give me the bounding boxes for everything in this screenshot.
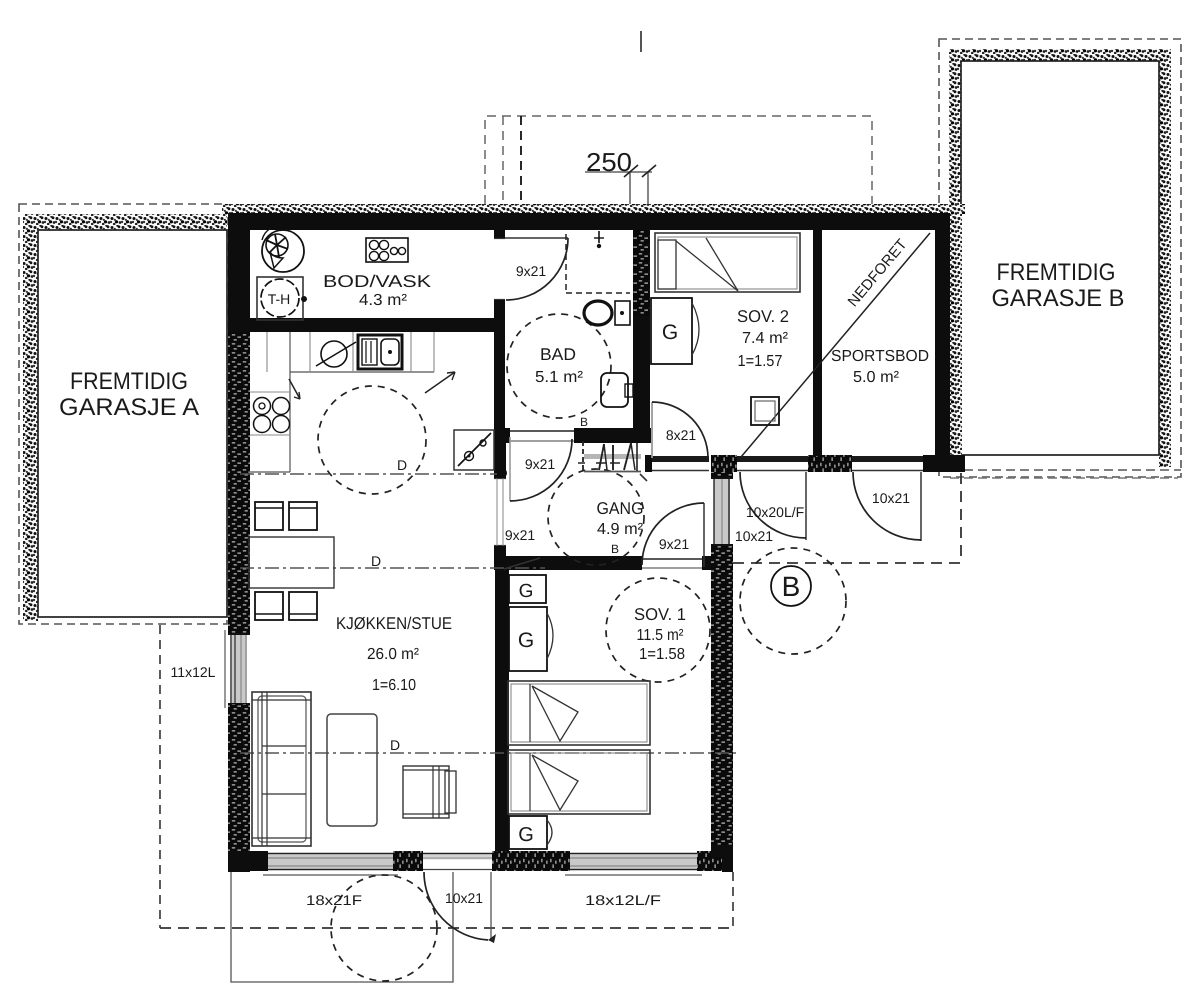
svg-text:5.0 m²: 5.0 m² — [853, 369, 900, 386]
svg-text:G: G — [518, 629, 534, 652]
svg-text:GARASJE B: GARASJE B — [992, 285, 1125, 312]
svg-text:7.4 m²: 7.4 m² — [742, 330, 789, 347]
svg-text:SOV. 2: SOV. 2 — [737, 307, 789, 326]
svg-text:11.5 m²: 11.5 m² — [637, 627, 685, 644]
svg-text:GANG: GANG — [597, 499, 644, 518]
svg-text:KJØKKEN/STUE: KJØKKEN/STUE — [336, 614, 452, 633]
svg-text:1=1.57: 1=1.57 — [738, 353, 783, 370]
svg-text:G: G — [662, 321, 678, 344]
svg-text:D: D — [390, 737, 400, 753]
svg-text:8x21: 8x21 — [666, 427, 697, 443]
svg-text:10x21: 10x21 — [872, 490, 910, 506]
svg-text:10x21: 10x21 — [735, 528, 773, 544]
svg-text:26.0 m²: 26.0 m² — [367, 646, 420, 663]
svg-text:18x21F: 18x21F — [306, 892, 362, 908]
svg-text:11x12L: 11x12L — [171, 664, 216, 680]
svg-text:1=1.58: 1=1.58 — [639, 646, 685, 663]
svg-text:5.1 m²: 5.1 m² — [535, 369, 584, 386]
svg-text:4.9 m²: 4.9 m² — [597, 521, 644, 538]
svg-text:GARASJE A: GARASJE A — [59, 394, 199, 421]
svg-text:10x21: 10x21 — [445, 890, 483, 906]
svg-text:G: G — [518, 824, 534, 846]
svg-text:FREMTIDIG: FREMTIDIG — [70, 368, 188, 395]
svg-text:G: G — [519, 581, 534, 602]
svg-text:10x20L/F: 10x20L/F — [746, 504, 804, 520]
svg-text:D: D — [371, 553, 381, 569]
svg-text:D: D — [397, 457, 407, 473]
svg-text:18x12L/F: 18x12L/F — [585, 892, 661, 908]
svg-text:SPORTSBOD: SPORTSBOD — [831, 348, 929, 365]
svg-text:BOD/VASK: BOD/VASK — [323, 272, 432, 291]
svg-text:T-H: T-H — [268, 291, 291, 307]
svg-text:B: B — [782, 571, 801, 602]
svg-text:1=6.10: 1=6.10 — [372, 677, 416, 694]
svg-text:9x21: 9x21 — [525, 456, 556, 472]
svg-text:4.3 m²: 4.3 m² — [359, 292, 408, 309]
svg-text:FREMTIDIG: FREMTIDIG — [997, 259, 1116, 286]
svg-text:B: B — [580, 415, 588, 429]
svg-text:BAD: BAD — [540, 345, 576, 364]
svg-text:B: B — [611, 542, 619, 556]
svg-text:SOV. 1: SOV. 1 — [634, 605, 686, 624]
svg-text:9x21: 9x21 — [505, 527, 536, 543]
svg-text:9x21: 9x21 — [516, 263, 547, 279]
svg-text:9x21: 9x21 — [659, 536, 690, 552]
